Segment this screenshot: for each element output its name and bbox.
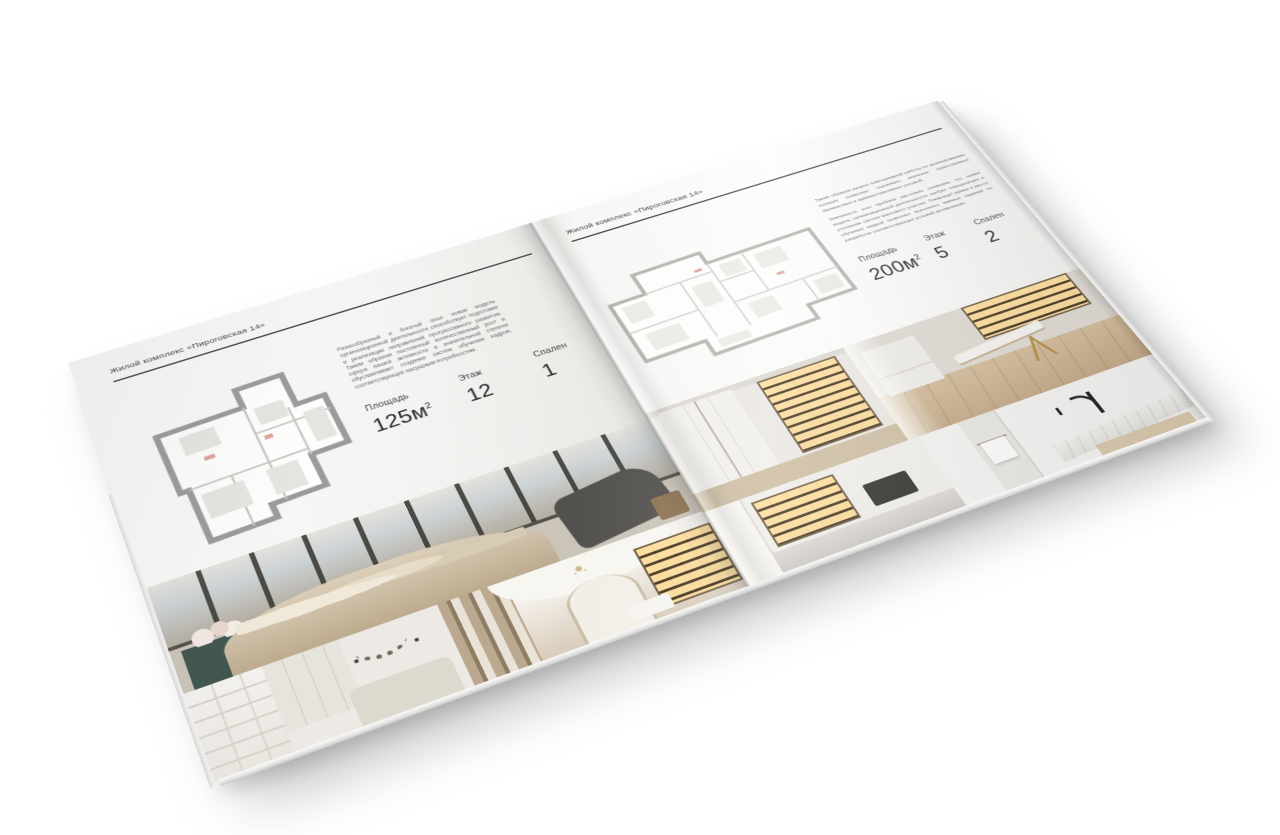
spec-floor: Этаж 5 [922,225,978,263]
spec-floor: Этаж 12 [457,363,514,406]
spec-bedrooms: Спален 1 [532,339,589,381]
page-header: Жилой комплекс «Пироговская 14» [564,188,704,236]
garland-decor [351,626,411,665]
apartment-info: Разнообразный и богатый опыт новая модел… [336,284,589,436]
dark-appliance [862,470,919,506]
spec-area: Площадь 200м2 [857,241,928,284]
faucet-spout [1054,407,1062,415]
spec-area: Площадь 125м2 [364,387,438,436]
wall-lamp [353,659,359,664]
page-header: Жилой комплекс «Пироговская 14» [109,321,267,375]
wall-lamp [414,637,420,642]
white-backdrop: Жилой комплекс «Пироговская 14» [0,0,1280,835]
spec-bedrooms: Спален 2 [972,209,1028,246]
